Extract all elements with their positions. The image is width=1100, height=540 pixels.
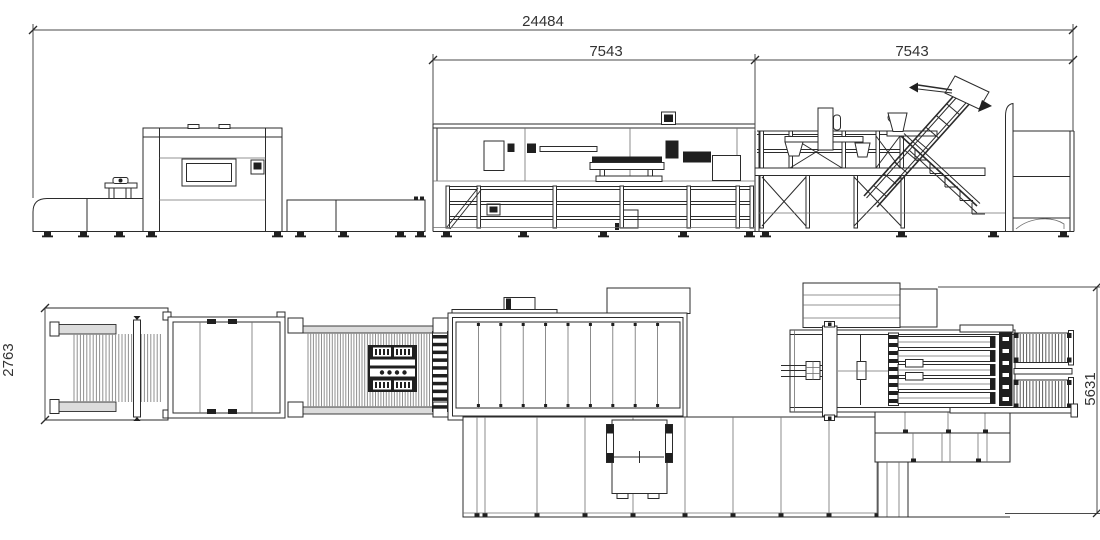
elevation-inclined-conveyor <box>864 76 992 207</box>
plan-transfer-box <box>163 312 285 418</box>
dim-infeed-width: 2763 <box>0 343 17 376</box>
elevation-infeed-conveyor <box>33 178 150 232</box>
elevation-transfer-conveyor <box>287 197 425 232</box>
plan-delivery-machine <box>781 283 1015 421</box>
elevation-feeder-gantry <box>143 125 282 232</box>
dim-left-section: 7543 <box>589 43 622 60</box>
machine-line-technical-drawing: 24484 7543 7543 2763 5631 <box>0 0 1100 540</box>
side-elevation-view <box>33 76 1074 237</box>
dim-right-section: 7543 <box>895 43 928 60</box>
plan-operator-platform <box>875 405 1010 517</box>
plan-view <box>45 283 1078 517</box>
elevation-delivery-stacker <box>755 76 1074 232</box>
dim-delivery-width: 5631 <box>1082 372 1099 405</box>
plan-infeed-conveyor <box>45 308 168 421</box>
elevation-main-machine <box>433 112 755 232</box>
dim-overall-length: 24484 <box>522 13 564 30</box>
plan-machine-base <box>463 405 1010 517</box>
plan-roller-bed <box>288 318 448 417</box>
plan-transfer-ladder <box>432 331 448 412</box>
plan-pendant-unit <box>607 420 673 499</box>
elevation-ground <box>33 232 1074 238</box>
plan-pallet <box>368 345 417 392</box>
